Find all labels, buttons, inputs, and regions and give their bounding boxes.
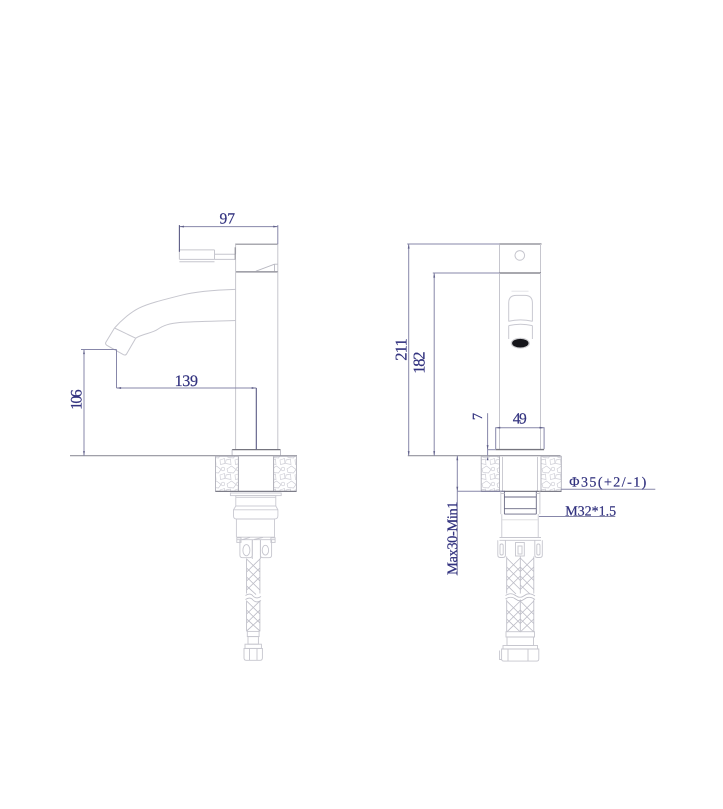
svg-text:211: 211 <box>391 338 410 361</box>
svg-text:M32*1.5: M32*1.5 <box>565 504 616 519</box>
svg-text:97: 97 <box>220 210 236 227</box>
svg-text:Max30-Min1: Max30-Min1 <box>445 501 461 575</box>
svg-text:182: 182 <box>409 351 428 373</box>
svg-text:Φ35(+2/-1): Φ35(+2/-1) <box>569 476 646 491</box>
svg-text:7: 7 <box>471 413 486 420</box>
svg-text:106: 106 <box>68 389 85 410</box>
svg-text:49: 49 <box>513 411 527 428</box>
svg-text:139: 139 <box>175 373 198 390</box>
